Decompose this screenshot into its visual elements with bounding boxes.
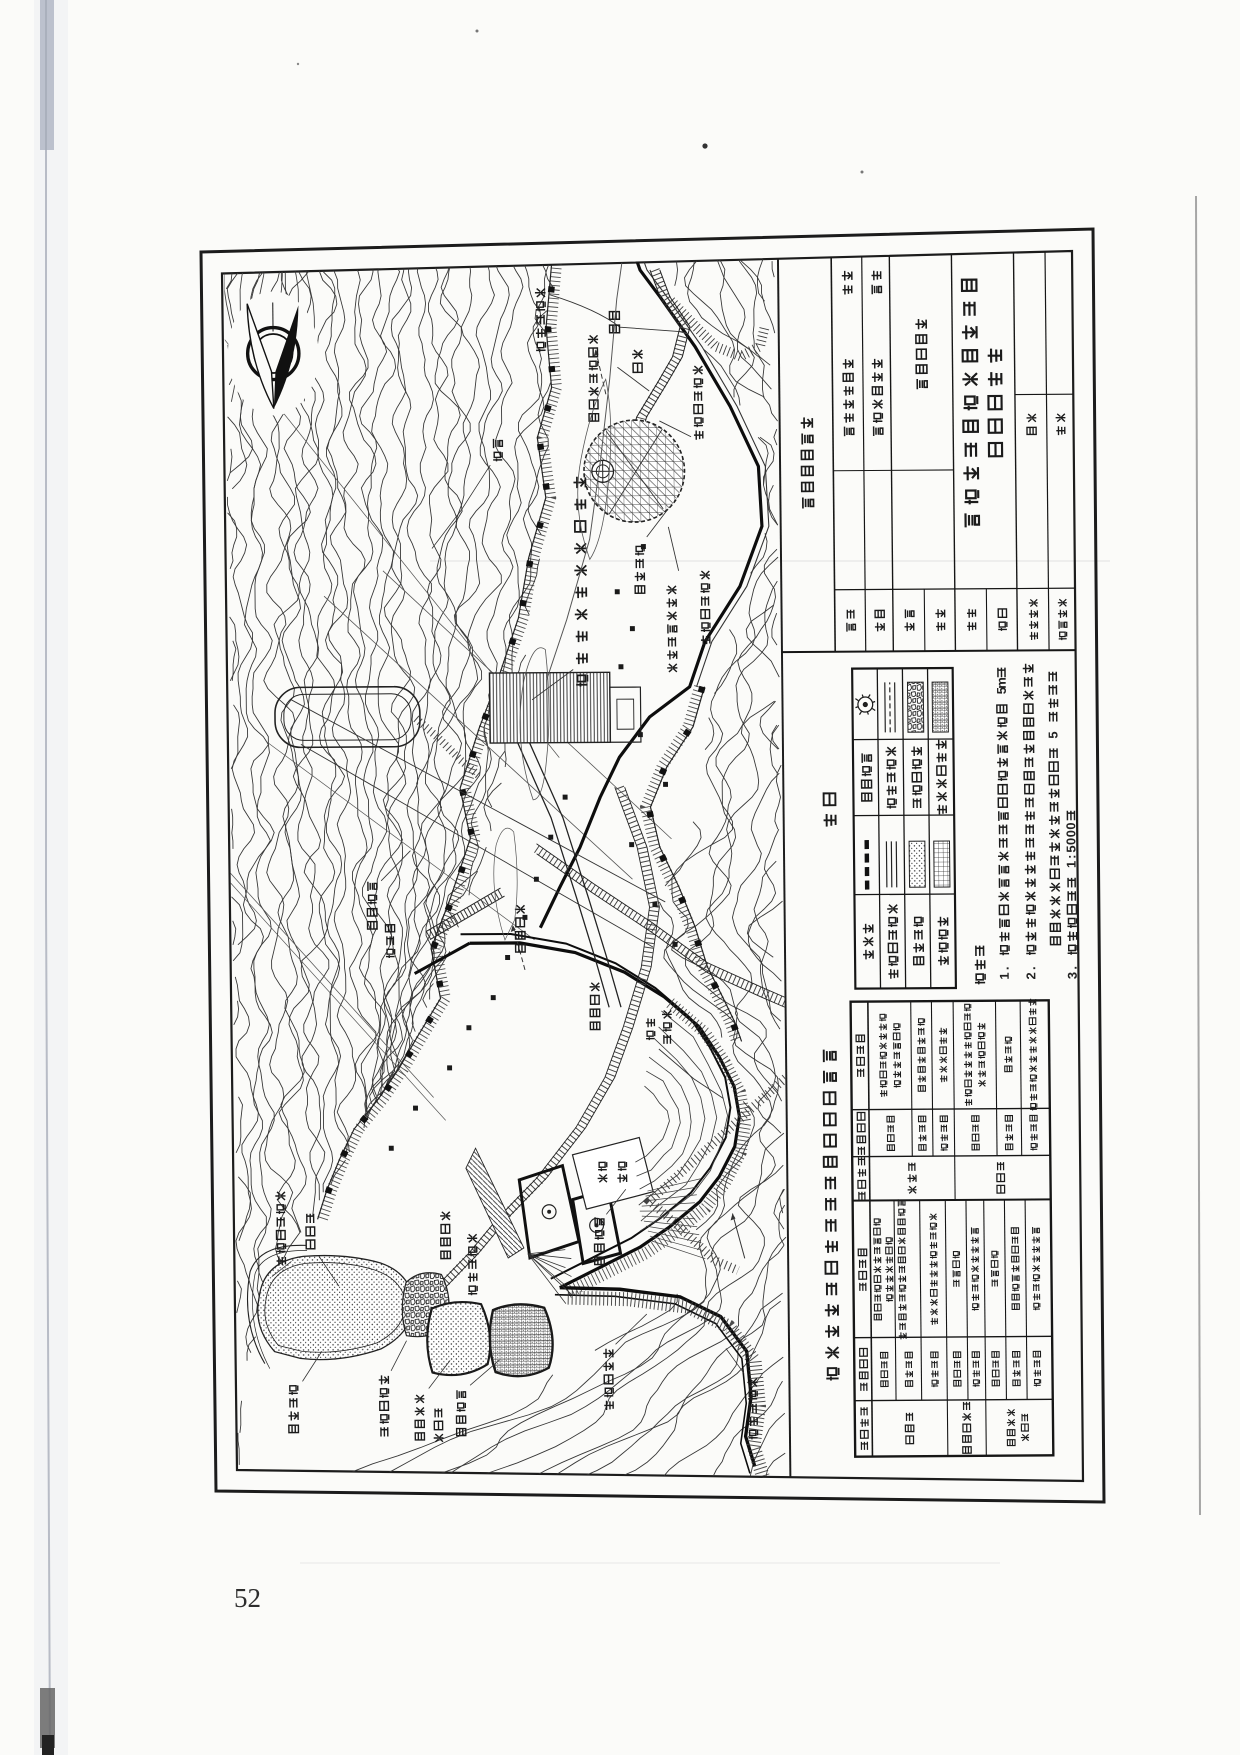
svg-text:.: . xyxy=(1065,966,1080,970)
svg-text:1: 1 xyxy=(997,972,1012,979)
svg-text:5: 5 xyxy=(1046,731,1061,738)
svg-text:.: . xyxy=(997,966,1012,970)
svg-text:1: 1 xyxy=(1064,861,1079,868)
svg-text:3: 3 xyxy=(1065,972,1080,979)
svg-text:.: . xyxy=(1023,966,1038,970)
svg-text:m: m xyxy=(994,677,1009,689)
svg-text:2: 2 xyxy=(1023,972,1038,979)
svg-text::: : xyxy=(1064,855,1079,859)
svg-text:0: 0 xyxy=(1063,822,1078,829)
svg-text:5: 5 xyxy=(1063,845,1078,852)
svg-text:0: 0 xyxy=(1063,838,1078,845)
svg-text:0: 0 xyxy=(1063,830,1078,837)
svg-text:52: 52 xyxy=(234,1583,261,1613)
